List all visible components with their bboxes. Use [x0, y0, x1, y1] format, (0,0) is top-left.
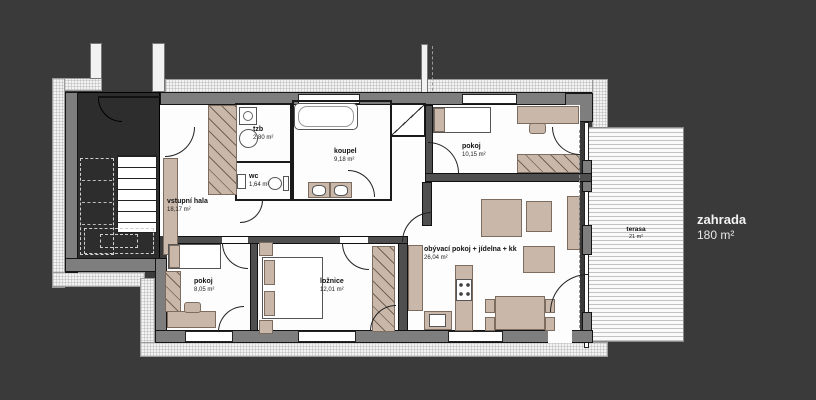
room-name-terasa: terasa — [626, 226, 645, 233]
wardrobe-north — [517, 154, 580, 173]
room-label-wc: wc 1,64 m² — [249, 173, 269, 189]
dining-chair-2 — [485, 317, 495, 331]
room-area-loznice: 12,01 m² — [320, 287, 344, 295]
room-label-zahrada: zahrada 180 m² — [697, 212, 746, 243]
room-name-tzb: tzb — [253, 126, 263, 133]
room-label-koupelna: koupel 9,18 m² — [334, 148, 357, 164]
kitchen-tall-cabinet — [408, 245, 423, 311]
room-label-pokoj-sever: pokoj 10,15 m² — [462, 143, 486, 159]
dining-chair-4 — [545, 317, 555, 331]
gravel-band-north — [165, 79, 608, 93]
double-bed-pillow-1 — [264, 260, 275, 285]
room-label-obyvak: obývací pokoj + jídelna + kk 26,04 m² — [424, 246, 517, 262]
armchair — [526, 201, 552, 232]
staircase-dashed-tread-2 — [82, 202, 112, 203]
window-south-loznice — [298, 331, 356, 342]
room-name-wc: wc — [249, 173, 258, 180]
window-north-pokoj — [462, 94, 517, 104]
room-label-loznice: ložnice 12,01 m² — [320, 278, 344, 294]
window-south-pokoj — [185, 331, 233, 342]
staircase-run — [117, 155, 157, 233]
coffee-table — [523, 246, 555, 273]
dining-table — [495, 296, 545, 330]
room-area-obyvak: 26,04 m² — [424, 255, 517, 263]
section-dash-line — [432, 46, 433, 96]
floor-plan: tzb 2,80 m² koupel 9,18 m² wc 1,64 m² vs… — [0, 0, 816, 400]
staircase-dashed-tread-1 — [82, 180, 112, 181]
washing-machine-drum — [243, 111, 253, 121]
room-name-loznice: ložnice — [320, 278, 344, 285]
room-label-terasa: terasa 21 m² — [588, 226, 684, 241]
room-area-terasa: 21 m² — [588, 234, 684, 241]
room-area-tzb: 2,80 m² — [253, 135, 273, 143]
desk-north-chair — [529, 123, 546, 134]
nightstand-2 — [259, 320, 273, 334]
room-name-zahrada: zahrada — [697, 212, 746, 227]
gravel-band-west — [52, 78, 65, 288]
room-name-pokoj-jih: pokoj — [194, 278, 213, 285]
room-name-pokoj-sever: pokoj — [462, 143, 481, 150]
wall-west-face — [65, 92, 78, 273]
double-bed-pillow-2 — [264, 291, 275, 316]
gravel-band-south — [140, 342, 608, 357]
wardrobe-south — [165, 271, 181, 312]
dining-chair-1 — [485, 299, 495, 313]
room-area-zahrada: 180 m² — [697, 228, 746, 243]
nightstand-1 — [259, 242, 273, 256]
door-gap-south — [548, 330, 572, 343]
room-label-pokoj-jih: pokoj 8,05 m² — [194, 278, 214, 294]
chimney-wall-c — [421, 44, 428, 96]
staircase-dashed-inner — [100, 234, 138, 248]
room-label-vstupni-hala: vstupní hala 18,17 m² — [167, 198, 208, 214]
hall-wardrobe — [208, 105, 237, 195]
chimney-wall-a — [90, 43, 102, 79]
basin-2 — [334, 185, 348, 196]
bathtub-inner — [298, 106, 354, 127]
desk-south — [167, 311, 216, 328]
room-name-vstupni-hala: vstupní hala — [167, 198, 208, 205]
wc-sink — [237, 174, 246, 189]
gravel-band-northeast — [592, 79, 608, 129]
room-area-vstupni-hala: 18,17 m² — [167, 207, 208, 215]
toilet-tank — [283, 176, 289, 191]
wall-corner-southeast — [571, 330, 593, 343]
window-south-living — [448, 331, 503, 342]
room-name-koupelna: koupel — [334, 148, 357, 155]
room-area-wc: 1,64 m² — [249, 182, 269, 190]
wall-pokoj-loznice — [250, 243, 258, 331]
staircase-dashed-tread-3 — [82, 224, 112, 225]
desk-north — [517, 106, 579, 124]
chimney-wall-b — [152, 43, 165, 92]
room-area-koupelna: 9,18 m² — [334, 157, 357, 165]
bed-north-pillow — [434, 108, 445, 132]
sofa — [481, 199, 522, 237]
bed-south-pillow — [169, 245, 180, 268]
desk-south-chair — [184, 302, 201, 313]
room-area-pokoj-sever: 10,15 m² — [462, 152, 486, 160]
kitchen-sink — [429, 314, 446, 327]
room-label-tzb: tzb 2,80 m² — [253, 126, 273, 142]
toilet-bowl — [268, 177, 282, 190]
gravel-band-step — [52, 272, 145, 287]
wall-stair-south — [65, 258, 167, 272]
basin-1 — [312, 185, 326, 196]
stove — [456, 279, 472, 301]
shaft-skylight — [390, 103, 426, 137]
wall-pokoj-north-south — [425, 173, 592, 182]
wall-loznice-living — [398, 243, 408, 331]
wall-bedrooms-north — [163, 236, 408, 244]
room-name-obyvak: obývací pokoj + jídelna + kk — [424, 246, 517, 253]
room-area-pokoj-jih: 8,05 m² — [194, 287, 214, 295]
